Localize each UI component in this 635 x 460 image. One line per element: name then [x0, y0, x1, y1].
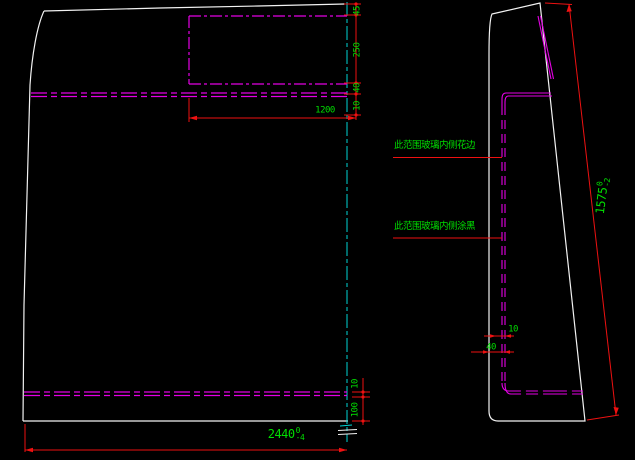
dimension-arrowheads [25, 2, 619, 452]
dim-10b-label: 10 [352, 379, 361, 389]
dim-1200-label: 1200 [315, 107, 335, 116]
dimension-lines [25, 3, 619, 452]
dim-1575-value: 1575 [594, 187, 609, 215]
dim-10-label: 10 [354, 101, 363, 111]
frit-band-bottom [24, 392, 347, 396]
dim-250-label: 250 [354, 43, 363, 58]
side-view-outline [489, 3, 585, 421]
dim-side-40-label: 40 [486, 344, 496, 353]
drawing-layer [0, 0, 635, 460]
symmetry-break-mark [338, 425, 357, 435]
note-frit-border: 此范围玻璃内侧花边 [394, 141, 475, 151]
dim-side-10-label: 10 [508, 326, 518, 335]
frit-band-top [31, 93, 347, 97]
dim-100-label: 100 [352, 403, 361, 418]
cad-canvas[interactable]: 45 250 40 10 1200 10 100 2440 0 -4 1575 … [0, 0, 635, 460]
dim-40-label: 40 [354, 83, 363, 93]
dim-2440-tol-lower: -4 [296, 434, 305, 441]
dim-2440-label: 2440 0 -4 [268, 427, 305, 441]
note-painted-area: 此范围玻璃内侧涂黑 [394, 222, 475, 232]
side-view-frit-lines [502, 16, 583, 394]
frit-rect [189, 16, 347, 84]
dim-1575-tol-lower: -2 [603, 178, 611, 187]
dim-2440-value: 2440 [268, 428, 295, 440]
front-view-outline [23, 4, 348, 421]
dim-45-label: 45 [354, 6, 363, 16]
